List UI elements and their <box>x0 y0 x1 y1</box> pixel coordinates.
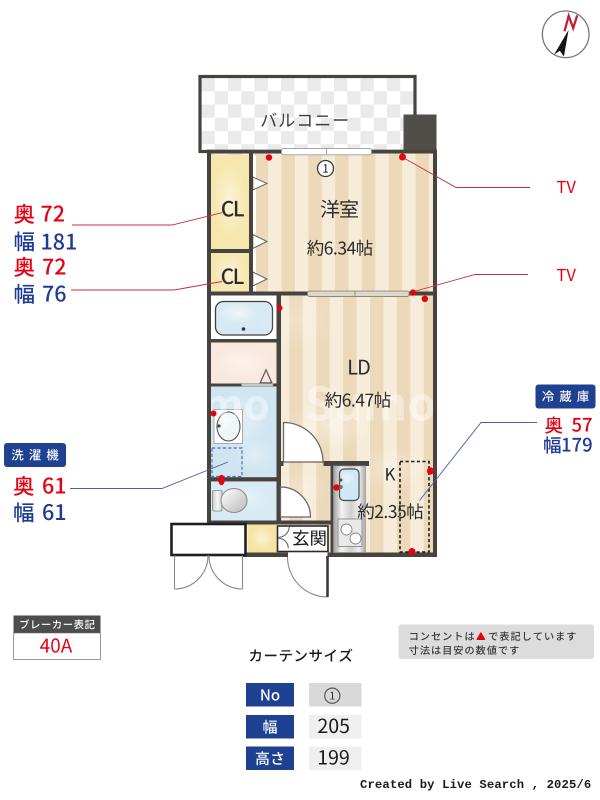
svg-text:Created by Live Search , 2025/: Created by Live Search , 2025/6 <box>360 778 591 792</box>
